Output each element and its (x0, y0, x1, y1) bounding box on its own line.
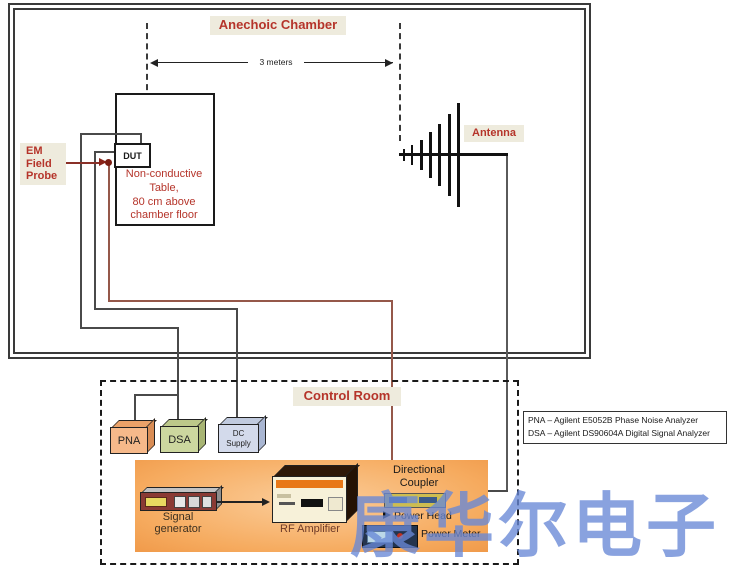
signal-generator-display (145, 497, 167, 507)
wire-b-v1 (94, 151, 96, 310)
antenna-centerline-dashed (399, 23, 401, 141)
signal-generator-label: Signal generator (138, 511, 218, 535)
wire-b-h1 (94, 151, 115, 153)
rf-amplifier-stripe (276, 480, 343, 488)
antenna-element (438, 124, 441, 186)
pna-label: PNA (110, 427, 148, 454)
rf-amplifier-label: RF Amplifier (270, 523, 350, 535)
watermark-text: 康华尔电子 (350, 470, 720, 567)
sg-to-amp-arrow-icon (262, 498, 270, 506)
wire-probe-v1 (108, 165, 110, 302)
antenna-element (448, 114, 451, 196)
table-caption-line: chamber floor (130, 209, 197, 221)
legend-box: PNA – Agilent E5052B Phase Noise Analyze… (523, 411, 727, 444)
rf-amplifier-vents (277, 494, 291, 498)
control-room-title: Control Room (293, 387, 401, 406)
table-caption-line: 80 cm above (133, 196, 196, 208)
dsa-box: DSA (160, 419, 205, 452)
distance-label: 3 meters (248, 57, 304, 67)
antenna-element (420, 140, 423, 170)
diagram-canvas: Anechoic Chamber 3 meters Non-conductive… (0, 0, 731, 567)
signal-generator-buttons (188, 496, 200, 508)
sg-to-amp-line (216, 501, 264, 503)
em-field-probe-label: EM Field Probe (20, 143, 66, 185)
wire-b-h2 (94, 308, 238, 310)
signal-generator-front (140, 492, 217, 511)
dut-box: DUT (114, 143, 151, 168)
legend-line-pna: PNA – Agilent E5052B Phase Noise Analyze… (528, 414, 722, 427)
signal-generator (140, 487, 220, 510)
table-caption-line: Table, (149, 182, 178, 194)
legend-line-dsa: DSA – Agilent DS90604A Digital Signal An… (528, 427, 722, 440)
probe-label-line: Field (26, 158, 52, 170)
dimension-arrow-right-icon (385, 59, 393, 67)
anechoic-chamber-title: Anechoic Chamber (210, 16, 346, 35)
probe-tip-dot (105, 159, 112, 166)
antenna-element (411, 145, 413, 165)
probe-label-line: EM (26, 145, 43, 157)
wire-probe-h (108, 300, 393, 302)
probe-lead-line (66, 162, 102, 164)
wire-a-h2 (80, 327, 179, 329)
dc-supply-line: DC (233, 429, 245, 439)
rf-amplifier (272, 465, 357, 522)
table-caption-line: Non-conductive (126, 168, 202, 180)
dc-supply-box: DC Supply (218, 417, 265, 452)
dc-supply-label: DC Supply (218, 424, 259, 453)
antenna-element (403, 149, 405, 161)
probe-label-line: Probe (26, 170, 57, 182)
dsa-label: DSA (160, 426, 199, 453)
dc-supply-line: Supply (226, 439, 250, 449)
rf-amplifier-button (328, 497, 343, 511)
pna-box: PNA (110, 420, 154, 453)
signal-generator-buttons (174, 496, 186, 508)
signal-generator-buttons (202, 496, 212, 508)
antenna-element (457, 103, 460, 207)
dimension-arrow-left-icon (150, 59, 158, 67)
wire-a-h1 (80, 133, 142, 135)
antenna-element (429, 132, 432, 178)
antenna-boom (399, 153, 508, 156)
rf-amplifier-front (272, 476, 347, 523)
rf-amplifier-display (301, 499, 323, 507)
dut-label: DUT (123, 151, 142, 161)
antenna-label: Antenna (464, 125, 524, 142)
rf-amplifier-knobs (279, 502, 295, 505)
